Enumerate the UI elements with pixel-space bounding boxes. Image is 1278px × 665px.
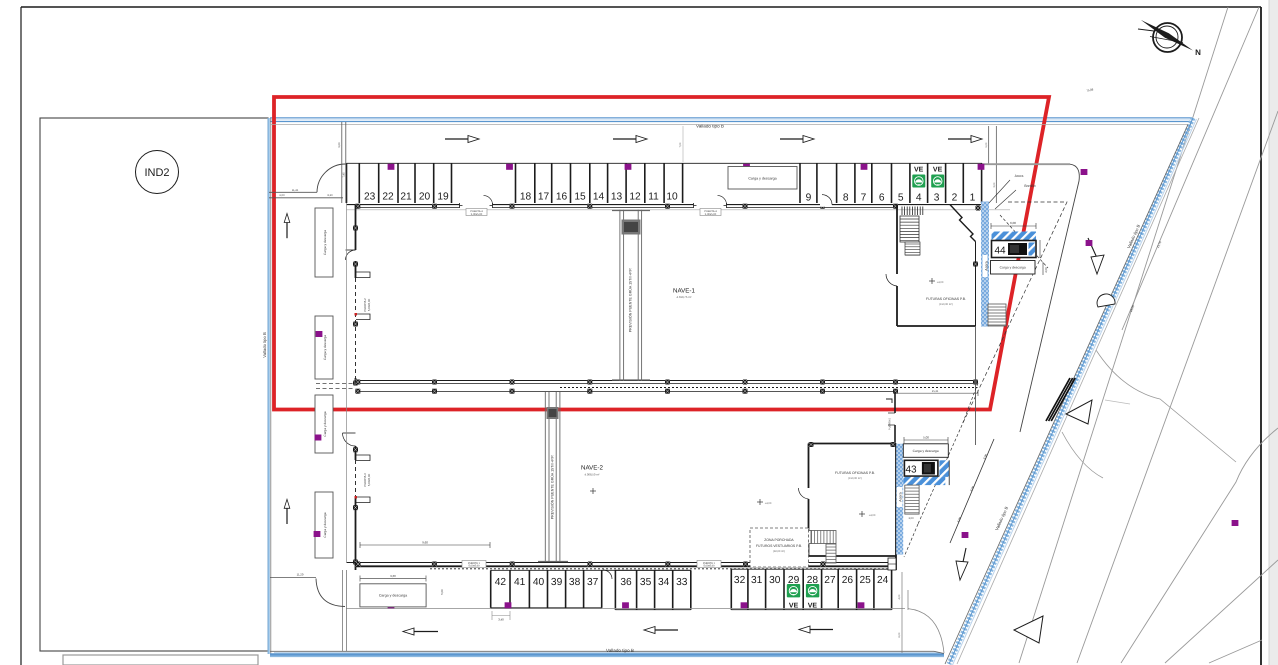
svg-text:43: 43 — [905, 465, 917, 476]
svg-text:(150,00 m²): (150,00 m²) — [848, 477, 862, 480]
svg-text:31: 31 — [751, 575, 763, 586]
svg-text:VE: VE — [914, 167, 924, 174]
svg-text:22: 22 — [382, 192, 394, 203]
svg-text:19: 19 — [437, 192, 449, 203]
svg-text:+4,00: +4,00 — [765, 502, 772, 505]
svg-text:ZONA PORCHADA: ZONA PORCHADA — [764, 538, 794, 542]
svg-text:4,00: 4,00 — [898, 594, 901, 599]
svg-text:41: 41 — [514, 577, 526, 588]
svg-text:5,00: 5,00 — [338, 142, 341, 148]
svg-text:Acera: Acera — [985, 261, 989, 270]
svg-text:33: 33 — [676, 577, 688, 588]
svg-text:6: 6 — [879, 193, 885, 204]
svg-text:15,35: 15,35 — [932, 390, 939, 393]
svg-text:Vallado tipo B: Vallado tipo B — [262, 332, 267, 358]
svg-text:6,00: 6,00 — [279, 194, 285, 197]
svg-text:4,00: 4,00 — [1044, 267, 1048, 273]
svg-text:Carga y descarga: Carga y descarga — [323, 512, 327, 537]
svg-text:7: 7 — [861, 193, 867, 204]
svg-text:21: 21 — [400, 192, 412, 203]
svg-text:N: N — [1195, 48, 1201, 57]
svg-text:VE: VE — [933, 167, 943, 174]
svg-text:(150,00 m²): (150,00 m²) — [939, 303, 953, 306]
svg-text:17: 17 — [538, 192, 550, 203]
svg-text:32: 32 — [734, 575, 746, 586]
svg-text:5,00: 5,00 — [985, 142, 988, 147]
svg-text:Acera: Acera — [899, 492, 903, 501]
svg-text:9,60: 9,60 — [422, 541, 428, 545]
svg-text:7,00: 7,00 — [679, 142, 682, 147]
svg-text:8: 8 — [843, 193, 849, 204]
svg-text:NAVE-2: NAVE-2 — [581, 465, 603, 472]
svg-text:34: 34 — [658, 577, 670, 588]
svg-text:PREVISIÓN PUENTE GRÚA 15Tm+P.P: PREVISIÓN PUENTE GRÚA 15Tm+P.P. — [628, 268, 633, 333]
svg-text:26: 26 — [842, 575, 854, 586]
svg-text:40: 40 — [533, 577, 545, 588]
svg-text:35: 35 — [640, 577, 652, 588]
svg-text:38: 38 — [569, 577, 581, 588]
svg-text:5,00: 5,00 — [440, 589, 444, 595]
svg-text:30: 30 — [769, 575, 781, 586]
svg-text:16: 16 — [556, 192, 568, 203]
svg-text:24: 24 — [877, 575, 889, 586]
svg-text:5,00x5,00: 5,00x5,00 — [705, 213, 717, 216]
svg-text:1: 1 — [970, 193, 976, 204]
svg-text:FUTURAS OFICINAS P.B.: FUTURAS OFICINAS P.B. — [926, 297, 966, 301]
svg-text:27: 27 — [824, 575, 836, 586]
svg-text:FUTUROS VESTUARIOS P.B.: FUTUROS VESTUARIOS P.B. — [756, 544, 802, 548]
svg-text:Carga y descarga: Carga y descarga — [323, 230, 327, 255]
svg-text:Bordillo: Bordillo — [1024, 184, 1035, 188]
svg-text:(60,00 m²): (60,00 m²) — [773, 550, 785, 553]
svg-text:11: 11 — [648, 192, 659, 203]
svg-text:2: 2 — [952, 193, 958, 204]
svg-text:39: 39 — [551, 577, 563, 588]
svg-text:5,00x5,00: 5,00x5,00 — [471, 213, 483, 216]
svg-text:Carga y descarga: Carga y descarga — [913, 449, 939, 453]
svg-text:6,00: 6,00 — [1010, 221, 1016, 225]
svg-text:3,00: 3,00 — [908, 517, 914, 520]
svg-text:13: 13 — [611, 192, 623, 203]
svg-text:IND2: IND2 — [144, 167, 169, 179]
svg-text:7,45: 7,45 — [343, 172, 346, 178]
svg-text:6,00: 6,00 — [898, 632, 901, 637]
svg-text:11,45: 11,45 — [292, 189, 299, 192]
svg-text:4.008,50 m²: 4.008,50 m² — [585, 473, 600, 477]
svg-text:9,60: 9,60 — [390, 574, 396, 578]
svg-text:NAVE-1: NAVE-1 — [673, 288, 695, 295]
svg-text:Vallado tipo B: Vallado tipo B — [606, 648, 634, 653]
svg-text:8,30: 8,30 — [327, 194, 333, 197]
svg-text:37: 37 — [587, 577, 599, 588]
svg-text:3: 3 — [934, 193, 940, 204]
svg-text:Carga y descarga: Carga y descarga — [323, 335, 327, 360]
svg-text:+4,00: +4,00 — [937, 281, 944, 284]
svg-text:5,00x5,00: 5,00x5,00 — [704, 565, 716, 568]
svg-text:Acera: Acera — [1015, 174, 1024, 178]
svg-text:14: 14 — [593, 192, 605, 203]
svg-text:5,00: 5,00 — [923, 436, 929, 440]
svg-text:5: 5 — [898, 193, 904, 204]
svg-text:4.319,75 m²: 4.319,75 m² — [677, 295, 692, 299]
svg-text:12: 12 — [629, 192, 641, 203]
svg-text:11,20: 11,20 — [297, 573, 304, 577]
svg-text:Carga y descarga: Carga y descarga — [379, 594, 407, 598]
svg-text:4: 4 — [916, 193, 922, 204]
svg-text:20: 20 — [419, 192, 431, 203]
svg-text:42: 42 — [495, 577, 507, 588]
svg-text:5,00x5,00: 5,00x5,00 — [469, 565, 481, 568]
svg-text:+4,00: +4,00 — [869, 514, 876, 517]
svg-text:Carga y descarga: Carga y descarga — [748, 177, 776, 181]
svg-text:15: 15 — [574, 192, 586, 203]
svg-text:PUERTA 5: PUERTA 5 — [889, 417, 892, 429]
svg-text:Carga y descarga: Carga y descarga — [323, 411, 327, 436]
svg-text:PREVISIÓN PUENTE GRÚA 15Tm+P.P: PREVISIÓN PUENTE GRÚA 15Tm+P.P. — [550, 455, 555, 520]
svg-text:18: 18 — [520, 192, 532, 203]
svg-text:5,00x5,00: 5,00x5,00 — [367, 298, 371, 311]
svg-text:3,40: 3,40 — [498, 618, 504, 622]
svg-text:25: 25 — [860, 575, 872, 586]
svg-text:23: 23 — [364, 192, 376, 203]
svg-text:FUTURAS OFICINAS P.B.: FUTURAS OFICINAS P.B. — [835, 471, 875, 475]
svg-text:Carga y descarga: Carga y descarga — [1000, 266, 1026, 270]
svg-text:9: 9 — [806, 193, 812, 204]
svg-text:36: 36 — [620, 577, 632, 588]
svg-text:5,00x5,00: 5,00x5,00 — [367, 473, 371, 486]
svg-text:3,00: 3,00 — [993, 182, 996, 187]
svg-text:44: 44 — [994, 246, 1006, 257]
svg-text:10: 10 — [666, 192, 678, 203]
